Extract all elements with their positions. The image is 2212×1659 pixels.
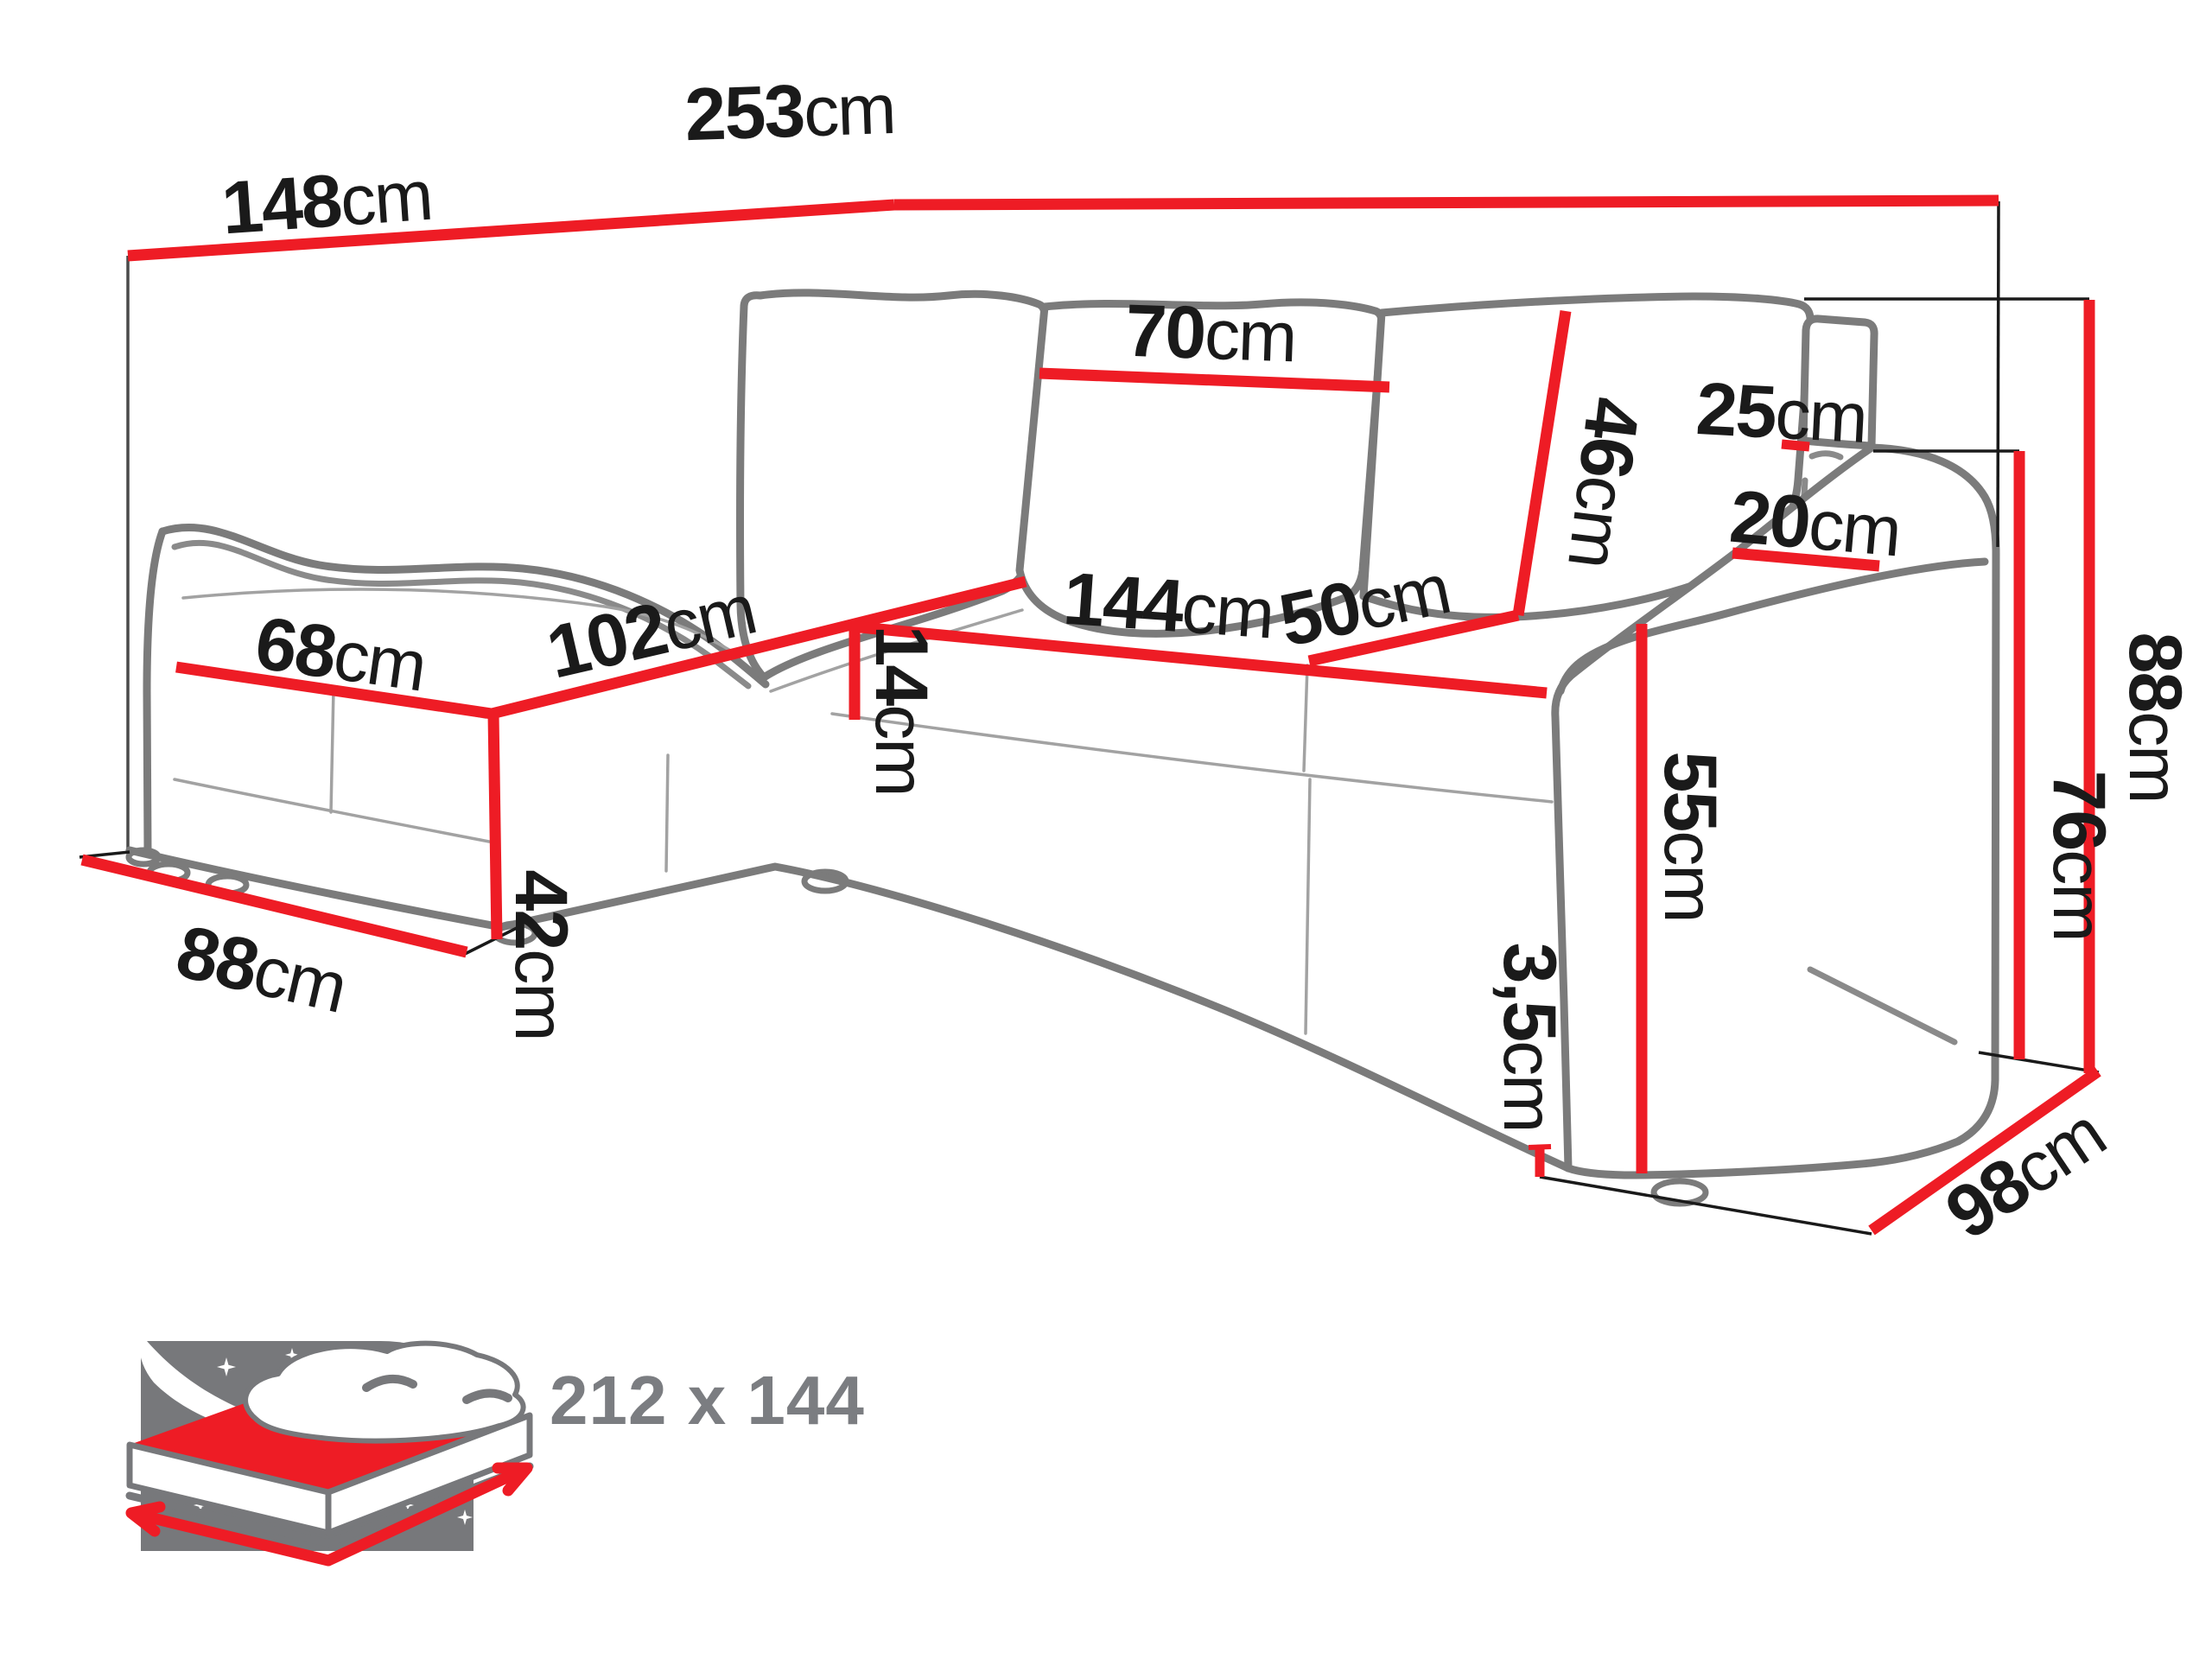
- dimension-label-42cm: 42cm: [499, 870, 582, 1040]
- sleeping-size-label: 212 x 144: [550, 1362, 865, 1439]
- chaise-front-seam: [331, 689, 334, 812]
- front-face-seam: [1306, 779, 1310, 1033]
- dimension-label-70cm: 70cm: [1124, 289, 1297, 378]
- extension-line: [1998, 201, 1999, 547]
- seat-divider-seam: [1304, 665, 1307, 771]
- dimension-label-253cm: 253cm: [683, 67, 896, 156]
- dimension-label-14cm: 14cm: [860, 626, 943, 796]
- dimension-line-42cm: [493, 714, 497, 939]
- dimension-label-88cm-left: 88cm: [169, 910, 354, 1029]
- dimension-label-3-5cm: 3,5cm: [1488, 943, 1571, 1132]
- dimension-tick-3-5cm: [1529, 1147, 1551, 1147]
- dimension-label-148cm: 148cm: [219, 153, 435, 251]
- dimension-label-88cm-right: 88cm: [2113, 632, 2196, 803]
- sofa-dimension-diagram: 148cm 253cm 70cm 102cm 68cm 144cm 50cm 4…: [0, 0, 2212, 1659]
- sofa-front-bottom-edge: [501, 867, 1568, 1168]
- dimension-label-76cm: 76cm: [2037, 771, 2120, 941]
- dimension-label-68cm: 68cm: [251, 601, 430, 707]
- chaise-left-edge: [147, 531, 162, 852]
- diagram-page: 148cm 253cm 70cm 102cm 68cm 144cm 50cm 4…: [0, 0, 2212, 1659]
- dimension-label-25cm: 25cm: [1694, 367, 1869, 459]
- extension-line: [1540, 1177, 1872, 1234]
- sleeping-function-icon: 212 x 144: [130, 1341, 865, 1560]
- front-face-seam: [666, 755, 668, 871]
- dimension-label-55cm: 55cm: [1649, 752, 1732, 922]
- dimension-line-253cm: [894, 200, 1999, 205]
